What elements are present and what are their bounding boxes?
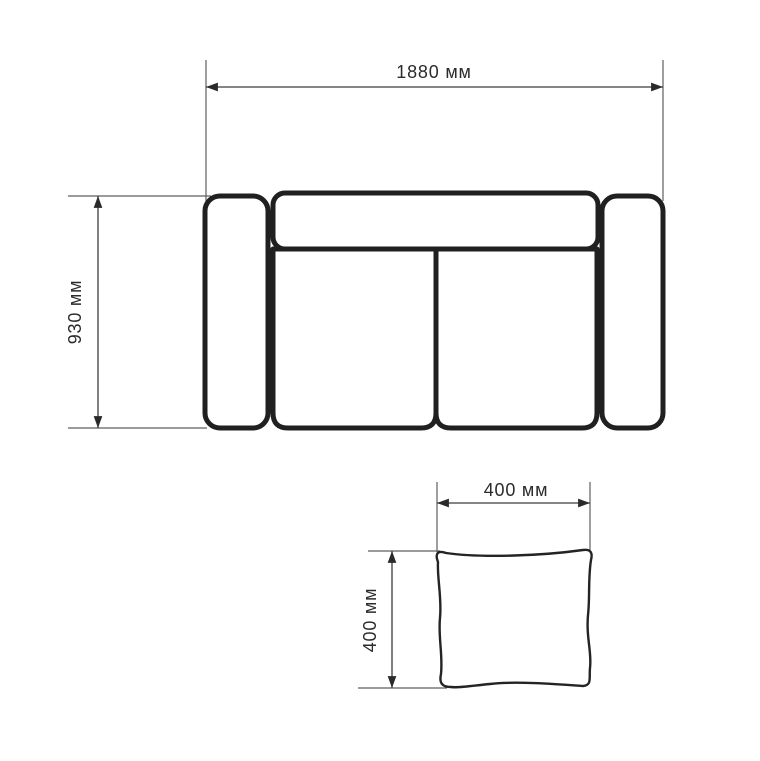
furniture-dimension-diagram: 1880 мм 930 мм 400 мм (0, 0, 760, 761)
sofa-top-view: 1880 мм 930 мм (65, 60, 663, 428)
sofa-seat-cushion-left (273, 249, 436, 428)
sofa-depth-dimension: 930 мм (65, 196, 211, 428)
pillow-width-dimension: 400 мм (437, 480, 590, 552)
pillow-height-dimension: 400 мм (358, 551, 447, 688)
sofa-width-label: 1880 мм (396, 62, 471, 82)
sofa-armrest-left (205, 196, 268, 428)
sofa-depth-label: 930 мм (65, 280, 85, 345)
technical-drawing-canvas: 1880 мм 930 мм 400 мм (0, 0, 760, 761)
pillow-height-label: 400 мм (360, 588, 380, 653)
pillow-outline (437, 550, 592, 687)
sofa-backrest (273, 193, 598, 249)
sofa-seat-cushion-right (436, 249, 597, 428)
sofa-width-dimension: 1880 мм (206, 60, 663, 201)
pillow-width-label: 400 мм (484, 480, 549, 500)
sofa-armrest-right (602, 196, 663, 428)
pillow-front-view: 400 мм 400 мм (358, 480, 592, 688)
